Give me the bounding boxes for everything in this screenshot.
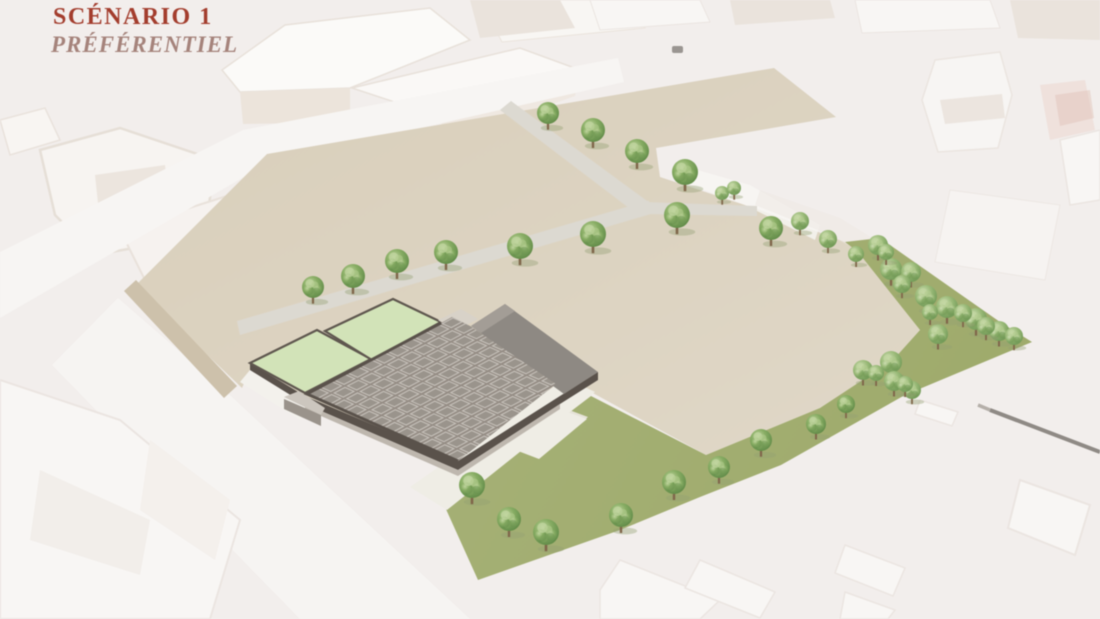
svg-text:SCÉNARIO 1: SCÉNARIO 1	[53, 4, 213, 30]
svg-text:PRÉFÉRENTIEL: PRÉFÉRENTIEL	[50, 32, 238, 57]
